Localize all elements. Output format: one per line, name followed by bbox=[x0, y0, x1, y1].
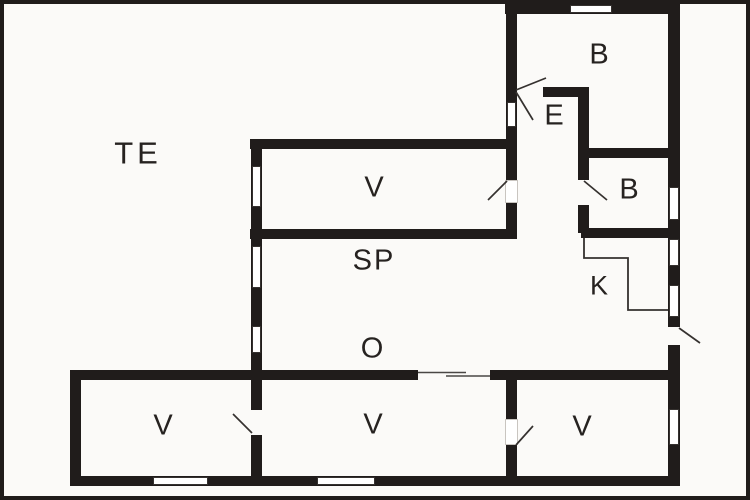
door-swing-line-bath-top bbox=[516, 78, 546, 90]
room-label-room-upper: V bbox=[364, 174, 385, 203]
room-label-hall: O bbox=[361, 335, 386, 364]
floor-plan: TE V SP O E B B K V V V bbox=[0, 0, 750, 500]
room-label-living-area: SP bbox=[353, 247, 396, 276]
room-label-room-bottom-right: V bbox=[572, 413, 593, 442]
door-swing-line-bath-middle bbox=[584, 181, 607, 200]
room-label-bath-middle: B bbox=[619, 176, 640, 205]
room-label-terrace: TE bbox=[114, 138, 162, 169]
room-label-bath-top: B bbox=[589, 41, 610, 70]
door-swing-line-entry bbox=[516, 92, 533, 120]
door-swing-line-room-upper bbox=[488, 181, 507, 200]
room-label-room-bottom-middle: V bbox=[363, 411, 384, 440]
room-label-kitchen: K bbox=[590, 273, 610, 300]
room-label-entry: E bbox=[544, 102, 565, 131]
door-swing-line-exterior bbox=[679, 328, 700, 343]
door-swing-line-room-bottom-left bbox=[233, 414, 252, 433]
room-label-room-bottom-left: V bbox=[153, 412, 174, 441]
door-swing-line-room-bottom-right bbox=[516, 426, 533, 445]
